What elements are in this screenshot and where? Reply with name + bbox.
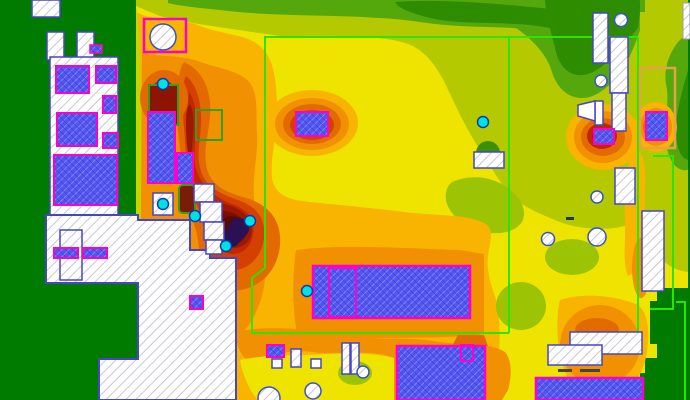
blue-bar[interactable]	[83, 248, 107, 258]
band-ltgreen-undertable	[496, 282, 546, 330]
shelf[interactable]	[593, 13, 608, 63]
step-box[interactable]	[206, 240, 222, 254]
table-large[interactable]	[313, 266, 470, 318]
blue-tag[interactable]	[90, 45, 102, 53]
cabinet[interactable]	[47, 32, 64, 60]
small-box[interactable]	[272, 359, 282, 368]
small-box[interactable]	[291, 349, 301, 367]
round-column[interactable]	[615, 14, 628, 27]
blue-unit[interactable]	[177, 153, 193, 183]
blue-tag[interactable]	[190, 296, 203, 309]
table-bottomright[interactable]	[536, 378, 643, 400]
measurement-point[interactable]	[190, 211, 201, 222]
measurement-point[interactable]	[221, 241, 232, 252]
blue-unit[interactable]	[56, 66, 89, 93]
step-box[interactable]	[200, 202, 222, 222]
cabinet[interactable]	[32, 0, 60, 17]
shelf[interactable]	[612, 93, 626, 131]
bracket[interactable]	[595, 101, 603, 125]
blue-bar[interactable]	[54, 248, 78, 258]
blue-unit[interactable]	[96, 66, 116, 83]
table-bottom[interactable]	[397, 346, 485, 400]
round-column[interactable]	[542, 233, 555, 246]
measurement-point[interactable]	[158, 79, 169, 90]
blue-unit[interactable]	[103, 133, 118, 148]
luminaire-block[interactable]	[296, 112, 328, 136]
luminaire-block[interactable]	[594, 129, 614, 144]
illuminance-map-canvas	[0, 0, 690, 400]
step-box[interactable]	[194, 184, 214, 202]
step-box[interactable]	[204, 222, 224, 240]
measurement-point[interactable]	[478, 117, 489, 128]
mark-dash[interactable]	[566, 217, 574, 220]
round-column[interactable]	[595, 75, 607, 87]
edge-panel[interactable]	[683, 3, 690, 39]
blue-tag[interactable]	[267, 345, 284, 357]
round-column[interactable]	[305, 383, 321, 399]
measurement-point[interactable]	[158, 199, 169, 210]
fixture[interactable]	[474, 152, 504, 168]
blue-unit-tall[interactable]	[148, 112, 175, 183]
measurement-point[interactable]	[245, 216, 256, 227]
round-column[interactable]	[357, 366, 369, 378]
mark-dash[interactable]	[558, 369, 572, 372]
blue-unit-large[interactable]	[54, 155, 117, 205]
small-box[interactable]	[311, 359, 321, 368]
measurement-point[interactable]	[302, 286, 313, 297]
double-panel[interactable]	[342, 343, 350, 374]
false-color-plan-viewport	[0, 0, 690, 400]
luminaire-block[interactable]	[646, 112, 667, 140]
shelf[interactable]	[615, 168, 635, 204]
tall-cabinet[interactable]	[642, 211, 664, 291]
layers-root	[0, 0, 690, 400]
mark-dash[interactable]	[580, 369, 600, 372]
blue-unit[interactable]	[103, 96, 116, 113]
calc-box-3[interactable]	[179, 185, 195, 213]
bench[interactable]	[548, 345, 602, 365]
blue-unit[interactable]	[57, 113, 97, 146]
round-column[interactable]	[588, 228, 606, 246]
round-column[interactable]	[150, 24, 176, 50]
shelf[interactable]	[610, 37, 628, 93]
round-column[interactable]	[591, 191, 603, 203]
